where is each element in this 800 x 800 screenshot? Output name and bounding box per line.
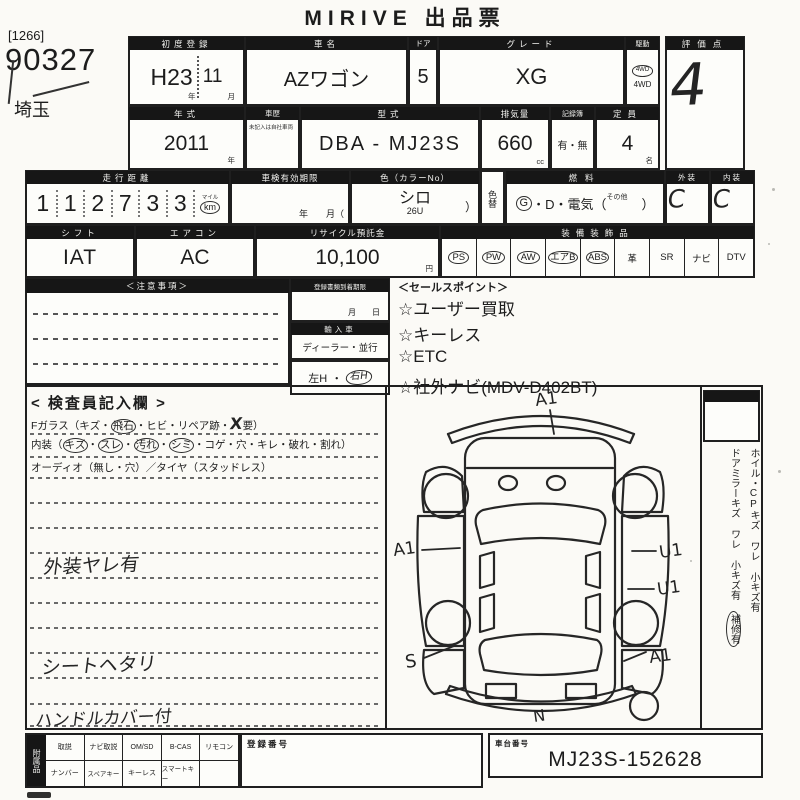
color-cell: 色（カラーNo） シロ 26U ） <box>350 170 480 225</box>
equipment-cell: 装備装飾品 PS PW AW エアB ABS 革 SR ナビ DTV <box>440 225 755 278</box>
interior-grade-value: C <box>709 183 755 223</box>
aircon-value: AC <box>137 239 253 276</box>
exterior-grade-header: 外装 <box>666 171 709 184</box>
damage-mark-left-rear: S <box>404 651 418 673</box>
doors-cell: ドア 5 <box>408 36 438 106</box>
damage-mark-right-front: U1 <box>658 540 684 563</box>
notice-blank-line <box>33 363 283 365</box>
mile-label: マイル <box>202 193 219 201</box>
scan-speck <box>772 188 775 191</box>
inspector-rule <box>30 527 380 529</box>
interior-grade-cell: 内装 C <box>710 170 755 225</box>
handle-dot: ・ <box>331 370 342 386</box>
drive-stamp: 4WD <box>632 65 653 77</box>
right-front-fender <box>622 467 664 512</box>
capacity-unit: 名 <box>646 155 654 166</box>
color-header: 色（カラーNo） <box>351 171 479 184</box>
prefecture: 埼玉 <box>14 96 50 122</box>
doors-value: 5 <box>410 50 436 104</box>
grade-header: グレード <box>439 37 624 50</box>
model-year-unit: 年 <box>228 155 236 166</box>
scan-speck <box>778 470 781 473</box>
handwritten-stroke <box>33 81 90 97</box>
equipment-header: 装備装飾品 <box>441 226 754 239</box>
interior-text: 内装（ <box>31 439 63 451</box>
fuel-other: その他 <box>606 192 627 202</box>
mileage-digit: 2 <box>85 190 113 217</box>
interior-text: ・コゲ・穴・キレ・破れ・割れ） <box>194 439 352 451</box>
car-damage-diagram: A1 A1 S U1 U1 A1 N <box>388 388 698 728</box>
mileage-digit: 3 <box>168 190 196 217</box>
interior-text: ・ <box>123 439 134 451</box>
sales-points-header: ＜セールスポイント＞ <box>398 279 748 295</box>
history-note: 未記入は自社車両 <box>249 123 293 131</box>
displacement-unit: cc <box>537 157 545 166</box>
glass-x-mark: X <box>229 414 244 433</box>
fuel-cell: 燃料 G ・D・電気（ その他 ） <box>505 170 665 225</box>
drive-cell: 駆動 4WD 4WD <box>625 36 660 106</box>
fuel-header: 燃料 <box>506 171 664 184</box>
model-year-header: 年式 <box>129 107 244 120</box>
side-memo-box <box>703 390 760 442</box>
auction-sheet: MIRIVE 出品票 [1266] 90327 埼玉 初度登録 H23 11 年… <box>0 0 800 800</box>
equipment-label: PS <box>448 251 469 265</box>
inspector-rule <box>30 602 380 604</box>
inspector-rule <box>30 456 380 458</box>
damage-mark-right-mid: U1 <box>656 577 682 600</box>
mark-leader <box>550 410 554 434</box>
windshield <box>476 504 606 545</box>
glass-text: Fガラス（キズ・ <box>31 420 111 432</box>
import-cell: 輸入車 ディーラー・並行 <box>290 322 390 360</box>
interior-text: ・ <box>159 439 170 451</box>
inspector-rule <box>30 477 380 479</box>
equipment-label: ナビ <box>692 251 711 265</box>
rear-window <box>480 634 602 675</box>
displacement-cell: 排気量 660 cc <box>480 106 550 170</box>
recycle-fee-value: 10,100 <box>257 239 438 276</box>
inspection-units: 年 月（ <box>299 207 344 220</box>
interior-wear-circled: スレ <box>98 438 123 453</box>
registration-number-cell: 登録番号 <box>240 733 483 788</box>
equipment-item-pw: PW <box>476 239 511 276</box>
handwritten-note: ハンドルカバー付 <box>34 702 173 732</box>
notice-box: ＜注意事項＞ <box>25 278 290 385</box>
mark-leader <box>624 652 646 661</box>
accessories-box: 附属品 取説 ナビ取説 OM/SD B-CAS リモコン ナンバー スペアキー … <box>25 733 240 788</box>
inspector-rule <box>30 502 380 504</box>
recycle-fee-header: リサイクル預託金 <box>256 226 439 239</box>
deadline-units: 月 日 <box>348 307 380 318</box>
equipment-item-navi: ナビ <box>684 239 719 276</box>
wheel-note: ホイル・CPキズ ワレ 小キズ有 <box>746 448 762 726</box>
inspector-title: < 検査員記入欄 > <box>31 392 167 413</box>
equipment-label: AW <box>517 251 540 265</box>
equipment-item-ps: PS <box>442 239 476 276</box>
equipment-item-leather: 革 <box>614 239 649 276</box>
damage-mark-rear: N <box>532 705 546 725</box>
equipment-item-aw: AW <box>510 239 545 276</box>
first-reg-month: 11 <box>203 66 223 88</box>
side-memo-header <box>704 391 759 402</box>
equipment-item-sr: SR <box>649 239 684 276</box>
equipment-label: ABS <box>586 251 609 265</box>
empty-grade-circle <box>630 692 658 720</box>
glass-text: ・ヒビ・リペア跡・ <box>136 420 231 432</box>
history-cell: 車歴 未記入は自社車両 <box>245 106 300 170</box>
scan-smudge <box>27 792 51 798</box>
inspection-cell: 車検有効期限 年 月（ <box>230 170 350 225</box>
score-value: 4 <box>660 49 751 170</box>
scan-speck <box>690 560 692 562</box>
month-unit: 月 <box>228 91 236 102</box>
sales-point-item: ☆ETC <box>398 347 447 367</box>
left-side-window <box>480 552 494 588</box>
side-notes: ホイル・CPキズ ワレ 小キズ有 ドアミラーキズ ワレ 小キズ有 補修有 <box>705 448 761 726</box>
notice-blank-line <box>33 338 283 340</box>
left-door-panel <box>417 516 464 646</box>
chassis-number-value: MJ23S-152628 <box>490 743 761 776</box>
damage-mark-left: A1 <box>392 538 417 561</box>
record-book-cell: 記録簿 有・無 <box>550 106 595 170</box>
sales-point-item: ☆ユーザー買取 <box>398 295 515 320</box>
mileage-header: 走行距離 <box>26 171 229 184</box>
registration-number-label: 登録番号 <box>247 738 289 750</box>
notice-blank-line <box>33 313 283 315</box>
page-title: MIRIVE 出品票 <box>255 2 555 30</box>
inspector-rule <box>30 433 380 435</box>
damage-mark-right-rear: A1 <box>648 645 673 668</box>
model-year-value: 2011 <box>130 120 243 168</box>
right-side-window <box>586 552 600 588</box>
color-value: シロ <box>399 190 431 208</box>
car-name-value: AZワゴン <box>247 50 406 104</box>
lot-number: 90327 <box>5 42 96 78</box>
aircon-cell: エアコン AC <box>135 225 255 278</box>
cowl-circle <box>547 476 565 490</box>
inspector-interior-line: 内装（キズ・スレ・汚れ・シミ・コゲ・穴・キレ・破れ・割れ） <box>31 437 352 453</box>
handwritten-note: 外装ヤレ有 <box>42 549 141 579</box>
recycle-fee-cell: リサイクル預託金 10,100 円 <box>255 225 440 278</box>
car-name-header: 車名 <box>246 37 407 50</box>
acc-manual: 取説 <box>46 735 84 760</box>
mileage-digit: 7 <box>113 190 141 217</box>
document-deadline-header: 登録書類到着期限 <box>291 279 389 292</box>
dotted-divider <box>197 56 199 98</box>
score-cell: 評価点 4 <box>665 36 745 170</box>
record-book-header: 記録簿 <box>551 107 594 120</box>
capacity-cell: 定員 4 名 <box>595 106 660 170</box>
fuel-options: ・D・電気（ <box>532 194 606 213</box>
color-change-cell: 色替 <box>480 170 505 225</box>
lot-bracket: [1266] <box>8 28 44 43</box>
equipment-item-dtv: DTV <box>718 239 753 276</box>
acc-spare-key: スペアキー <box>84 761 123 787</box>
capacity-header: 定員 <box>596 107 659 120</box>
first-registration-cell: 初度登録 H23 11 年 月 <box>128 36 245 106</box>
mileage-digit: 1 <box>30 190 58 217</box>
drive-value: 4WD <box>634 80 652 89</box>
shift-cell: シフト IAT <box>25 225 135 278</box>
equipment-label: エアB <box>548 251 577 265</box>
interior-scratch-circled: キズ <box>63 438 88 453</box>
history-header: 車歴 <box>246 107 299 120</box>
mileage-digit: 1 <box>58 190 86 217</box>
right-side-window <box>586 594 600 632</box>
fuel-gasoline-circled: G <box>516 196 533 212</box>
acc-om-sd: OM/SD <box>122 735 161 760</box>
acc-navi-manual: ナビ取説 <box>84 735 123 760</box>
model-code-value: DBA - MJ23S <box>302 120 478 168</box>
equipment-label: PW <box>482 251 505 265</box>
handle-right-circled: 右H <box>345 370 372 385</box>
exterior-grade-cell: 外装 C <box>665 170 710 225</box>
shift-header: シフト <box>26 226 134 239</box>
exterior-grade-value: C <box>664 183 710 223</box>
inspector-audio-line: オーディオ（無し・穴）／タイヤ（スタッドレス） <box>31 460 271 475</box>
fuel-close-paren: ） <box>641 194 654 213</box>
acc-empty <box>199 761 238 787</box>
interior-dirt-circled: 汚れ <box>134 438 159 453</box>
doors-header: ドア <box>409 37 437 50</box>
inspector-glass-line: Fガラス（キズ・飛石・ヒビ・リペア跡・X要） <box>31 414 264 434</box>
drive-header: 駆動 <box>626 37 659 50</box>
mirror-note: ドアミラーキズ ワレ 小キズ有 <box>729 448 740 600</box>
acc-keyless: キーレス <box>122 761 161 787</box>
year-unit: 年 <box>188 91 196 102</box>
car-name-cell: 車名 AZワゴン <box>245 36 408 106</box>
color-code: 26U <box>407 207 424 217</box>
equipment-label: SR <box>660 252 673 263</box>
color-close-paren: ） <box>465 198 477 215</box>
equipment-item-abs: ABS <box>580 239 615 276</box>
left-side-window <box>480 594 494 632</box>
grade-value: XG <box>440 50 623 104</box>
sales-points: ＜セールスポイント＞ ☆ユーザー買取 ☆キーレス ☆ETC ☆社外ナビ(MDV-… <box>398 279 748 395</box>
acc-bcas: B-CAS <box>161 735 200 760</box>
section-divider <box>385 385 387 730</box>
model-code-header: 型式 <box>301 107 479 120</box>
repair-note-circled: 補修有 <box>726 611 741 647</box>
inspector-rule <box>30 627 380 629</box>
record-book-value: 有・無 <box>552 120 593 168</box>
first-registration-header: 初度登録 <box>129 37 244 50</box>
equipment-item-airbag: エアB <box>545 239 580 276</box>
glass-stone-chip-circled: 飛石 <box>111 419 136 434</box>
color-change-label: 色替 <box>482 174 503 223</box>
model-year-cell: 年式 2011 年 <box>128 106 245 170</box>
aircon-header: エアコン <box>136 226 254 239</box>
interior-stain-circled: シミ <box>169 438 194 453</box>
mileage-cell: 走行距離 1 1 2 7 3 3 マイル km <box>25 170 230 225</box>
recycle-fee-unit: 円 <box>426 263 434 274</box>
inspection-header: 車検有効期限 <box>231 171 349 184</box>
cowl-circle <box>499 476 517 490</box>
interior-grade-header: 内装 <box>711 171 754 184</box>
mark-leader <box>424 646 454 658</box>
handle-left: 左H <box>308 370 327 386</box>
shift-value: IAT <box>27 239 133 276</box>
mirror-repair-note: ドアミラーキズ ワレ 小キズ有 補修有 <box>726 448 742 726</box>
grade-cell: グレード XG <box>438 36 625 106</box>
handwritten-note: シートヘタリ <box>40 649 158 680</box>
equipment-label: DTV <box>727 252 746 263</box>
mark-leader <box>422 548 460 550</box>
interior-text: ・ <box>88 439 99 451</box>
first-reg-year: H23 <box>151 64 193 91</box>
notice-header: ＜注意事項＞ <box>26 279 289 293</box>
import-header: 輸入車 <box>291 323 389 335</box>
acc-remote: リモコン <box>199 735 238 760</box>
equipment-label: 革 <box>627 251 637 265</box>
displacement-header: 排気量 <box>481 107 549 120</box>
acc-smart-key: スマートキー <box>161 761 200 787</box>
wheel-rear-right <box>614 601 658 645</box>
model-code-cell: 型式 DBA - MJ23S <box>300 106 480 170</box>
mileage-digit: 3 <box>140 190 168 217</box>
accessories-label-cell: 附属品 <box>27 735 46 786</box>
km-unit-badge: km <box>200 201 220 214</box>
document-deadline-cell: 登録書類到着期限 月 日 <box>290 278 390 322</box>
section-divider <box>700 385 702 730</box>
scan-speck <box>768 243 770 245</box>
damage-mark-front: A1 <box>534 388 559 411</box>
sales-point-item: ☆キーレス <box>398 321 481 346</box>
car-body <box>465 438 615 704</box>
glass-text: 要） <box>243 420 264 432</box>
score-header: 評価点 <box>666 37 744 50</box>
chassis-number-box: 車台番号 MJ23S-152628 <box>488 733 763 778</box>
acc-number-plate: ナンバー <box>46 761 84 787</box>
import-value: ディーラー・並行 <box>292 335 388 358</box>
